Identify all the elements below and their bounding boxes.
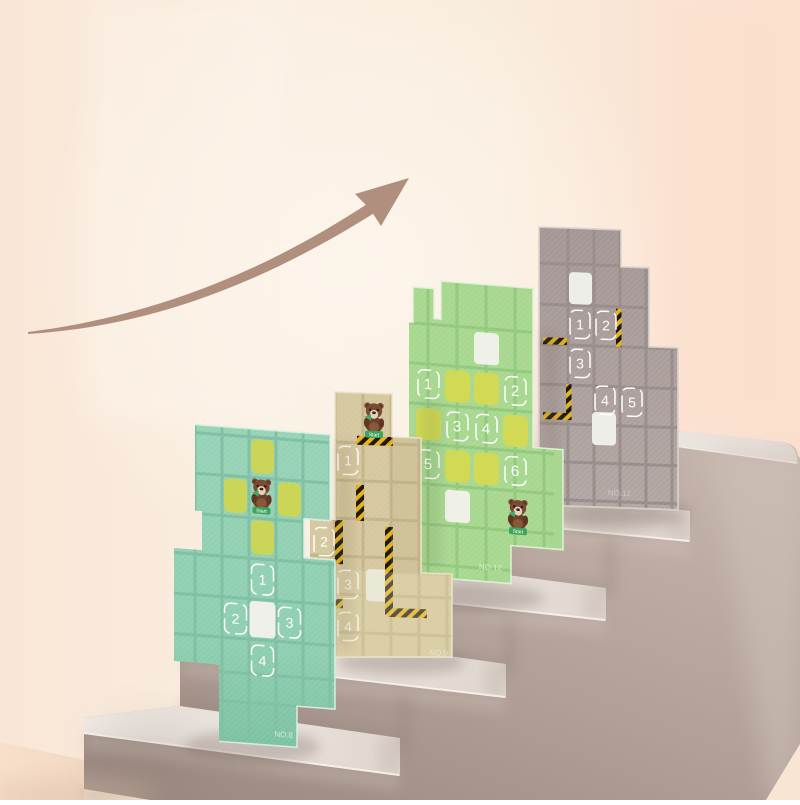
svg-text:4: 4 <box>601 392 609 408</box>
svg-text:6: 6 <box>511 463 519 481</box>
svg-text:NO.12: NO.12 <box>608 488 632 498</box>
svg-text:2: 2 <box>511 383 519 401</box>
svg-text:3: 3 <box>576 355 584 371</box>
svg-text:2: 2 <box>232 610 240 627</box>
svg-text:1: 1 <box>259 571 267 588</box>
svg-text:2: 2 <box>320 533 328 549</box>
svg-text:4: 4 <box>482 420 490 438</box>
svg-text:1: 1 <box>576 316 584 332</box>
svg-text:3: 3 <box>453 418 461 436</box>
svg-text:NO.8: NO.8 <box>274 730 293 740</box>
svg-text:NO.12: NO.12 <box>479 562 503 573</box>
svg-text:2: 2 <box>602 317 610 333</box>
svg-text:4: 4 <box>259 652 267 669</box>
svg-text:3: 3 <box>286 614 294 631</box>
svg-text:5: 5 <box>628 394 636 410</box>
svg-text:1: 1 <box>424 376 432 394</box>
